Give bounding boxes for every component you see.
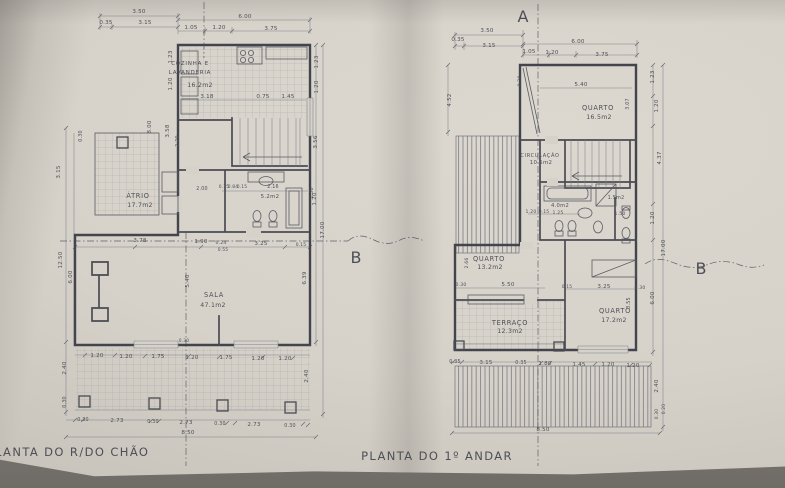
room-label: QUARTO (473, 255, 505, 263)
dim-label: 3.15 (56, 165, 62, 178)
dim-label: 3.50 (480, 28, 493, 34)
room-label: QUARTO (582, 104, 614, 112)
dim-label: 1.20 (601, 362, 614, 368)
stair-treads (571, 140, 620, 188)
dim-label: 0.35 (449, 359, 460, 365)
vanity-counter (248, 172, 284, 182)
dim-label: 0.30 (179, 338, 190, 344)
dim-label: 17.00 (320, 221, 326, 238)
area-label: 12.3m2 (497, 328, 523, 335)
dim-label: 3.25 (254, 241, 267, 247)
dim-label: 0.30 (455, 282, 466, 288)
dim-label: 1.23 (650, 70, 656, 83)
dim-label: 0.30 (284, 423, 295, 429)
dim-label: 1.80 (538, 361, 551, 367)
dim-label: 0.15 (237, 184, 248, 190)
dim-label: 0.35 (99, 20, 112, 26)
dim-label: 6.00 (68, 270, 74, 283)
dim-label: 1.90 (194, 239, 207, 245)
dim-label: 12.50 (58, 251, 64, 268)
dim-label: 0.20 (661, 404, 667, 415)
stair-treads (240, 118, 300, 166)
section-marker-b: B (351, 248, 362, 267)
room-label: COZINHA E (171, 61, 209, 67)
fireplace (92, 262, 108, 321)
dim-label: 1.75 (219, 355, 232, 361)
dim-label: 0.30 (77, 417, 88, 423)
roof-hatch-left (456, 136, 519, 253)
washbasin (594, 221, 603, 233)
dim-label: 0.75 (256, 94, 269, 100)
dim-label: 5.40 (574, 82, 587, 88)
shower-stall (286, 188, 302, 228)
wardrobe-diagonal (523, 67, 540, 134)
section-marker-b: B (696, 259, 707, 278)
door-opening (186, 166, 199, 174)
dim-label: 2.73 (247, 422, 260, 428)
dim-label: 8.50 (536, 427, 549, 433)
bidet (269, 211, 277, 222)
dim-label: 3.50 (132, 9, 145, 15)
area-label: 1.5m2 (608, 195, 625, 201)
area-label: 47.1m2 (200, 302, 226, 309)
toilet (253, 211, 261, 222)
dim-label: 1.45 (572, 362, 585, 368)
dim-label: 1.20 (185, 355, 198, 361)
dim-label: 3.75 (595, 52, 608, 58)
dim-label: 0.35 (515, 360, 526, 366)
dim-label: 4.37 (657, 151, 663, 164)
ground-floor-title: PLANTA DO R/DO CHÃO (0, 444, 149, 459)
bidet-base (269, 222, 277, 227)
dim-label: 0.30 (517, 75, 523, 86)
dim-label: 3.18 (200, 94, 213, 100)
photo-of-floor-plans: B PLANTA DO R/DO CHÃO 3.500.353.156.001.… (0, 0, 785, 488)
toilet-tank (253, 222, 261, 227)
toilet (555, 221, 563, 232)
dim-label: 1.45 (281, 94, 294, 100)
dim-label: 4.52 (447, 93, 453, 106)
dim-label: 1.20 (90, 353, 103, 359)
dim-label: 3.25 (597, 284, 610, 290)
dim-label: 2.00 (196, 186, 207, 192)
dim-label: 17.00 (661, 239, 667, 256)
dim-label: 1.50 (614, 211, 625, 217)
area-label: 17.2m2 (601, 317, 627, 324)
dim-label: 0.30 (654, 409, 660, 420)
first-floor-title: PLANTA DO 1º ANDAR (361, 449, 513, 463)
dim-label: 6.00 (238, 14, 251, 20)
storage-closet (162, 196, 178, 214)
dim-label: 0.30 (214, 421, 225, 427)
dim-label: 1.20 (654, 99, 660, 112)
dim-label: 3.55 (626, 297, 632, 308)
dim-label: 0.15 (562, 284, 573, 290)
dim-label: 1.20 (168, 77, 174, 90)
dim-label: 5.40 (185, 274, 191, 287)
dim-label: 0.30 (634, 285, 645, 291)
dim-label: 3.75 (264, 26, 277, 32)
bidet (622, 228, 630, 239)
dim-label: 1.20 (312, 192, 318, 205)
dim-label: 1.05 (522, 49, 535, 55)
bidet (568, 221, 576, 232)
section-line-b-wavy (348, 236, 424, 243)
dim-label: 6.00 (571, 39, 584, 45)
dim-label: 1.23 (314, 55, 320, 68)
area-label: 5.2m2 (261, 194, 280, 200)
door-opening (246, 228, 261, 237)
dim-label: 1.75 (151, 354, 164, 360)
dim-label: 3.15 (138, 20, 151, 26)
dim-label: 1.20 (650, 211, 656, 224)
dim-label: 6.39 (302, 271, 308, 284)
dim-label: 2.20 (175, 135, 181, 146)
dim-label: 6.00 (650, 291, 656, 304)
room-label: TERRAÇO (491, 319, 528, 327)
dim-label: 1.20 (545, 50, 558, 56)
dim-label: 1.20 (278, 356, 291, 362)
dim-label: 0.15 (296, 242, 307, 248)
dim-label: 2.40 (304, 369, 310, 382)
dim-label: 1.20 (212, 25, 225, 31)
door-opening (547, 178, 558, 186)
dim-label: 1.23 (168, 50, 174, 63)
dim-label: 0.55 (218, 247, 229, 253)
storage-closet (162, 172, 178, 192)
stair-direction-arrow (243, 153, 302, 161)
washbasin (578, 208, 592, 218)
dim-label: 0.15 (539, 209, 550, 215)
room-label: ÁTRIO (126, 191, 149, 200)
dim-label: 1.20 (251, 356, 264, 362)
dim-label: 2.66 (464, 257, 470, 268)
dim-label: 1.20 (525, 209, 536, 215)
floor-plan-drawing: B PLANTA DO R/DO CHÃO 3.500.353.156.001.… (0, 0, 785, 488)
dim-label: 0.30 (78, 130, 84, 141)
dim-label: 2.73 (110, 418, 123, 424)
dim-label: 1.20 (314, 80, 320, 93)
dim-label: 2.40 (654, 379, 660, 392)
door-opening (524, 297, 537, 304)
dim-label: 8.00 (147, 120, 153, 133)
dim-label: 3.15 (482, 43, 495, 49)
door-opening (176, 196, 182, 212)
dim-label: 1.20 (626, 363, 639, 369)
dim-label: 5.50 (501, 282, 514, 288)
dim-label: 8.50 (181, 430, 194, 436)
interior-walls (178, 118, 310, 345)
closet-diagonal (592, 260, 636, 277)
room-label: SALA (204, 291, 224, 299)
bathtub-basin (547, 188, 588, 199)
dim-label: 3.56 (313, 135, 319, 148)
section-marker-a: A (518, 7, 529, 26)
dim-label: 3.58 (165, 124, 171, 137)
dim-label: 1.20 (119, 354, 132, 360)
area-label: 13.2m2 (477, 264, 503, 271)
area-label: 16.5m2 (586, 114, 612, 121)
dim-label: 0.35 (451, 37, 464, 43)
area-label: 4.0m2 (551, 203, 569, 209)
dim-label: 3.07 (625, 98, 631, 109)
area-label: 17.7m2 (127, 202, 153, 209)
area-label: 10.5m2 (530, 160, 552, 166)
stair-direction-arrow (572, 172, 622, 180)
dim-label: 0.24 (215, 240, 226, 246)
dim-label: 0.30 (62, 396, 68, 407)
area-label: 16.2m2 (187, 82, 213, 89)
door-opening (520, 242, 533, 249)
dim-label: 2.16 (267, 184, 278, 190)
dim-label: 2.73 (179, 420, 192, 426)
ground-floor-plan: B PLANTA DO R/DO CHÃO 3.500.353.156.001.… (0, 2, 424, 466)
first-floor-plan: A B PLANTA DO 1º ANDAR 3.500.353.156.001… (361, 4, 764, 466)
dim-label: 1.25 (552, 210, 563, 216)
roof-hatch-bottom (455, 366, 651, 427)
room-label: LAVANDERIA (169, 70, 211, 76)
dim-label: 1.05 (184, 25, 197, 31)
dim-label: 2.40 (62, 361, 68, 374)
dim-label: 3.78 (133, 238, 146, 244)
shower-tray (289, 191, 299, 225)
dim-label: 3.15 (479, 360, 492, 366)
door-opening (545, 136, 558, 144)
dim-label: 0.30 (147, 419, 158, 425)
room-label: CIRCULAÇÃO (520, 152, 559, 159)
